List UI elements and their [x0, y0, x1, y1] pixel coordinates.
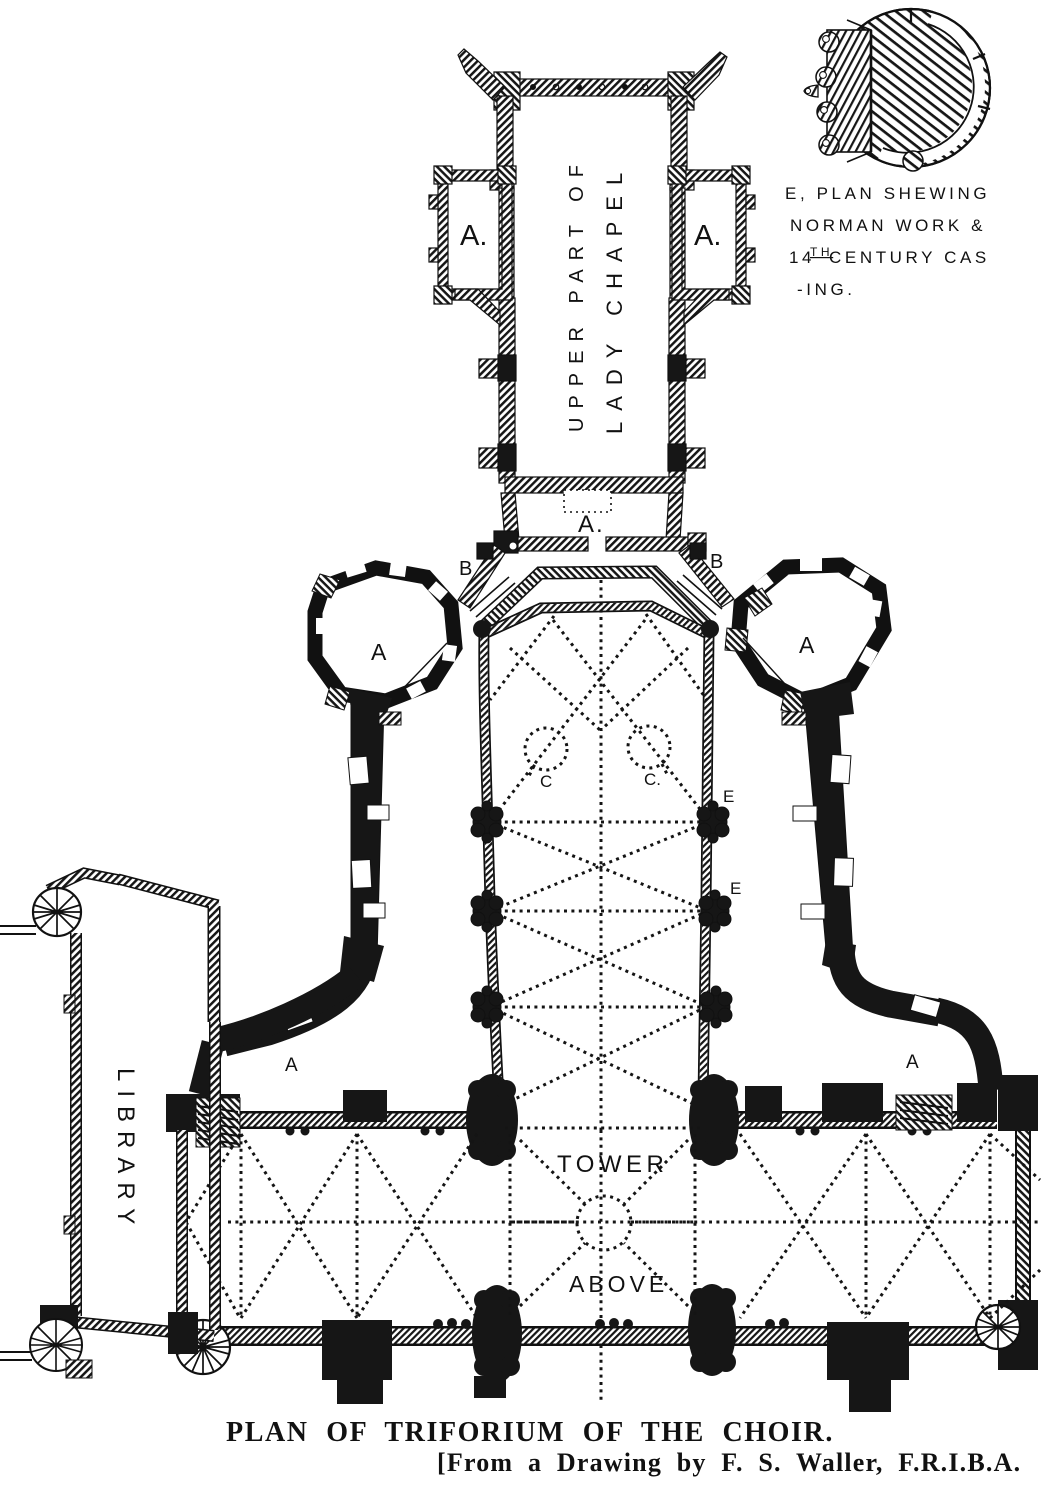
svg-text:B: B	[710, 551, 723, 573]
svg-text:A: A	[285, 1055, 298, 1076]
svg-text:[From a Drawing by F. S. Walle: [From a Drawing by F. S. Waller, F.R.I.B…	[437, 1448, 1021, 1477]
svg-text:-ING.: -ING.	[797, 280, 856, 299]
svg-text:CENTURY CAS: CENTURY CAS	[829, 248, 990, 267]
svg-text:A.: A.	[578, 511, 605, 538]
svg-text:B: B	[459, 558, 472, 580]
svg-text:C.: C.	[644, 770, 661, 789]
svg-text:A.: A.	[694, 220, 721, 252]
svg-text:PLAN OF TRIFORIUM OF THE CHOIR: PLAN OF TRIFORIUM OF THE CHOIR.	[226, 1417, 834, 1448]
svg-text:A: A	[906, 1052, 919, 1073]
svg-text:ABOVE: ABOVE	[569, 1271, 668, 1297]
svg-text:LIBRARY: LIBRARY	[112, 1068, 139, 1233]
svg-text:NORMAN WORK &: NORMAN WORK &	[790, 216, 986, 235]
svg-text:TOWER: TOWER	[557, 1151, 668, 1178]
svg-text:E: E	[723, 787, 734, 806]
svg-text:A: A	[799, 632, 815, 658]
svg-text:C: C	[540, 772, 552, 791]
svg-text:UPPER PART OF: UPPER PART OF	[566, 156, 588, 432]
svg-text:E: E	[730, 879, 741, 898]
svg-text:LADY CHAPEL: LADY CHAPEL	[602, 162, 627, 434]
svg-text:E, PLAN SHEWING: E, PLAN SHEWING	[785, 184, 990, 203]
svg-text:A: A	[371, 639, 387, 665]
svg-text:A.: A.	[460, 220, 487, 252]
